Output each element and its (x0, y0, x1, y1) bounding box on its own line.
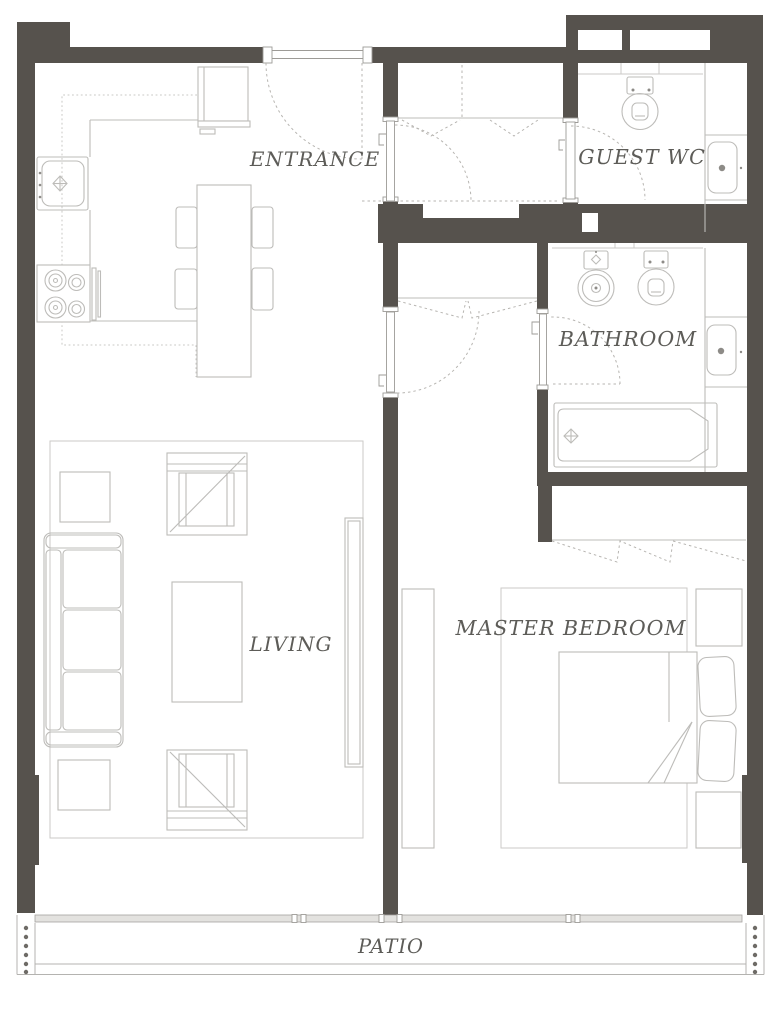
coffee-table (172, 582, 242, 702)
side-table-bottom (58, 760, 110, 810)
corridor-closet (398, 298, 537, 318)
dining-table (197, 185, 251, 377)
floor-plan-page: ENTRANCE (0, 0, 768, 1009)
bedroom-dresser (402, 589, 434, 848)
entrance-door (263, 47, 372, 159)
tv-console (345, 518, 363, 767)
entrance-label: ENTRANCE (249, 147, 380, 171)
kitchen-counter (90, 120, 198, 321)
entrance-door-swing-icon (266, 63, 362, 159)
bathroom-washbasin (705, 248, 747, 472)
overhead-cabinets (62, 95, 197, 377)
floor-plan-drawing: ENTRANCE (0, 0, 768, 1009)
refrigerator (198, 67, 250, 134)
kitchen (37, 67, 273, 377)
sofa (44, 533, 123, 747)
cooktop (37, 265, 101, 322)
living-label: LIVING (248, 632, 332, 656)
corridor-door (379, 307, 479, 398)
hall-door (379, 117, 471, 202)
pillow (698, 656, 737, 717)
double-bed (559, 652, 737, 783)
side-table-top (60, 472, 110, 522)
guest-wc-label: GUEST WC (578, 145, 706, 169)
bathroom (552, 243, 747, 472)
bathtub (554, 403, 717, 467)
armchair-bottom (167, 750, 247, 830)
pillow (697, 720, 736, 782)
bathroom-label: BATHROOM (558, 327, 697, 351)
oven-handle (92, 268, 96, 320)
bidet (578, 251, 614, 306)
master-bedroom-label: MASTER BEDROOM (455, 616, 687, 640)
patio-label: PATIO (357, 935, 424, 958)
bathroom-toilet (638, 251, 674, 305)
nightstand-top (696, 589, 742, 646)
bedroom-closet (552, 540, 746, 562)
nightstand-bottom (696, 792, 741, 848)
sliding-glass-door (35, 915, 742, 923)
master-bedroom (402, 540, 746, 848)
armchair-top (167, 453, 247, 535)
guest-wc-toilet (622, 77, 658, 130)
